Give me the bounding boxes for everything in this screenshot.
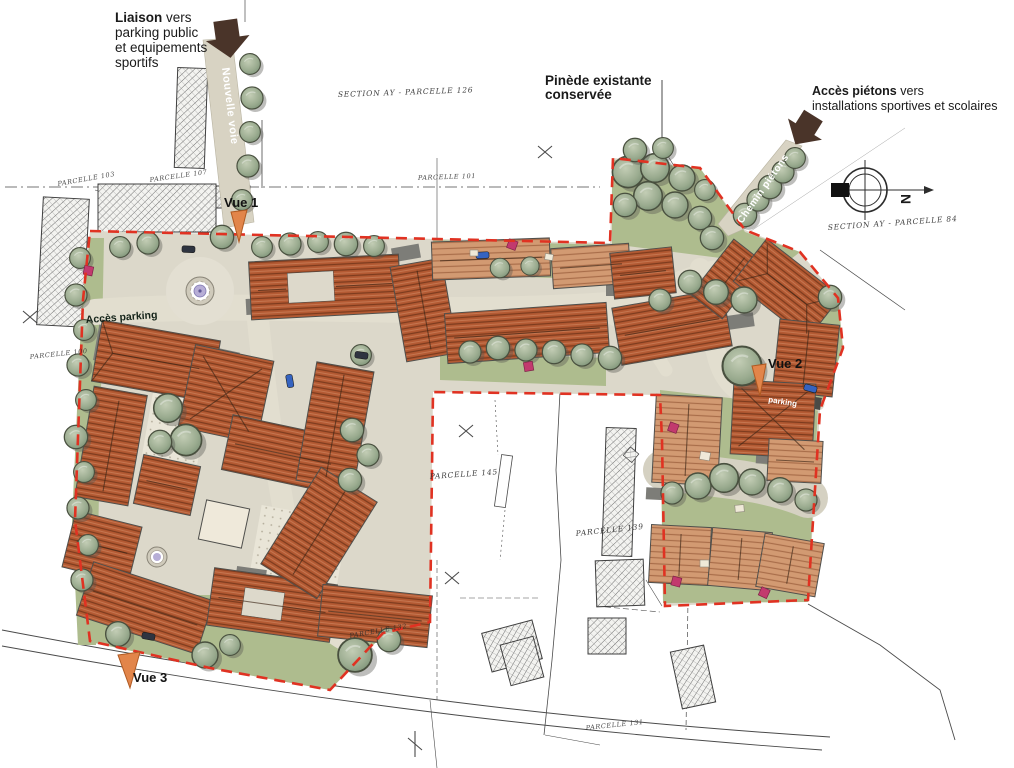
section-84-label: SECTION AY - PARCELLE 84: [828, 214, 958, 232]
acces-pietons-rest: vers: [897, 84, 924, 98]
fountain-roundabout: [186, 277, 214, 305]
pinede-line2: conservée: [545, 87, 612, 102]
vue-3-label: Vue 3: [133, 670, 167, 685]
vue-1-label: Vue 1: [224, 195, 258, 210]
section-126-label: SECTION AY - PARCELLE 126: [338, 85, 474, 99]
parcel-label: PARCELLE 107: [148, 168, 208, 184]
vue-2-label: Vue 2: [768, 356, 802, 371]
liaison-line4: sportifs: [115, 55, 159, 70]
acces-pietons-line2: installations sportives et scolaires: [812, 99, 998, 113]
liaison-label-rest: vers: [162, 10, 192, 25]
compass-north-label: N: [898, 194, 914, 204]
svg-text:Accès piétons vers: Accès piétons vers: [812, 84, 924, 98]
pinede-line1: Pinède existante: [545, 73, 652, 88]
parcel-label: PARCELLE 101: [417, 172, 476, 182]
parcel-label: PARCELLE 145: [429, 467, 499, 481]
svg-text:Liaison vers: Liaison vers: [115, 10, 192, 25]
liaison-line2: parking public: [115, 25, 199, 40]
site-plan-drawing: Vue 1 Vue 2 Vue 3 N Nouvelle voie Chemin…: [0, 0, 1014, 768]
annotation-acces-pietons: Accès piétons vers installations sportiv…: [812, 84, 998, 113]
compass-rose: N: [831, 160, 934, 220]
acces-pietons-bold: Accès piétons: [812, 84, 897, 98]
annotation-liaison: Liaison vers parking public et equipemen…: [115, 10, 208, 70]
annotation-pinede: Pinède existante conservée: [545, 73, 652, 102]
liaison-label-bold: Liaison: [115, 10, 162, 25]
site-plan-canvas: Vue 1 Vue 2 Vue 3 N Nouvelle voie Chemin…: [0, 0, 1014, 768]
fountain-plaza: [147, 547, 167, 567]
liaison-line3: et equipements: [115, 40, 208, 55]
parcel-label: PARCELLE 131: [584, 718, 644, 732]
access-arrows: [203, 17, 830, 155]
